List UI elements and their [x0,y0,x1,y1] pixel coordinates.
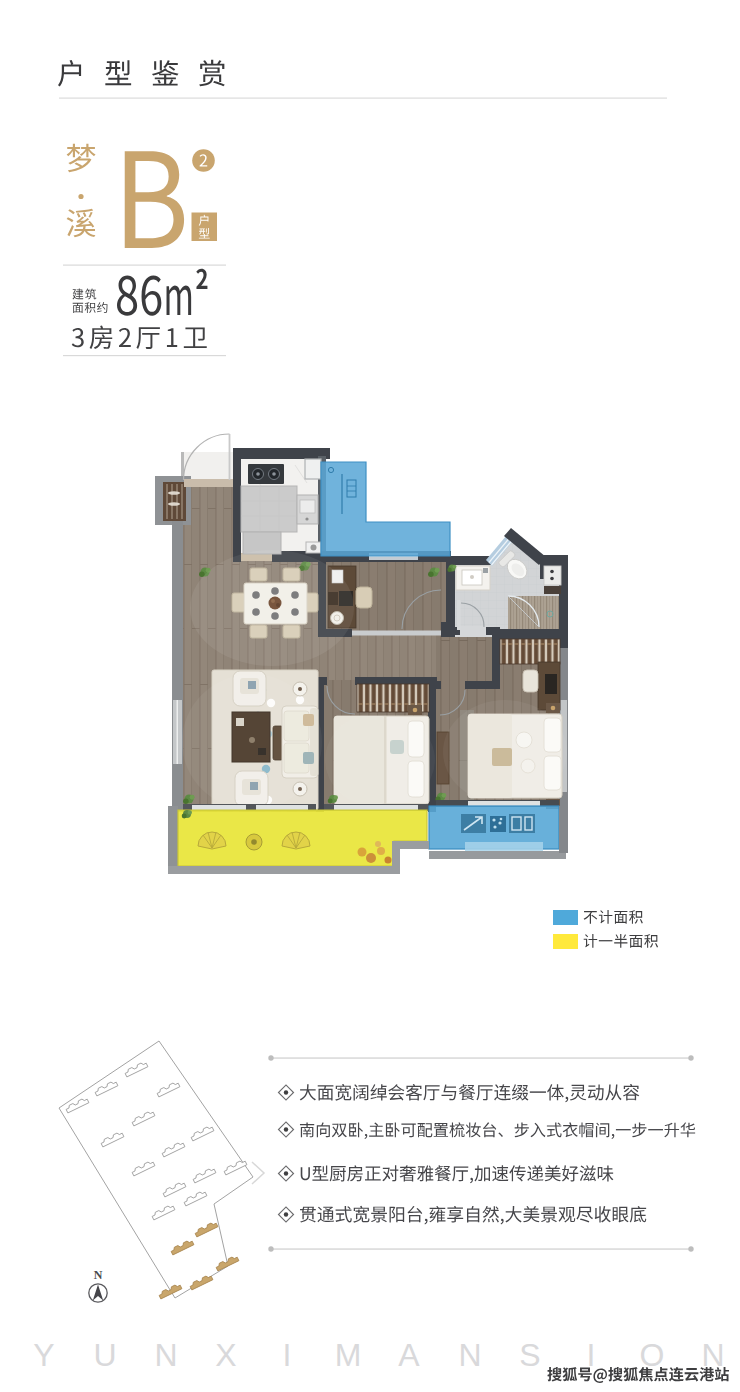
svg-text:Y: Y [33,1337,54,1373]
svg-text:N: N [701,1337,724,1373]
svg-text:S: S [519,1337,540,1373]
svg-text:U: U [93,1337,116,1373]
svg-text:M: M [335,1337,362,1373]
svg-text:I: I [283,1337,292,1373]
svg-text:N: N [94,1268,103,1282]
svg-text:A: A [398,1337,420,1373]
svg-text:N: N [154,1337,177,1373]
svg-text:N: N [458,1337,481,1373]
svg-text:X: X [215,1337,236,1373]
